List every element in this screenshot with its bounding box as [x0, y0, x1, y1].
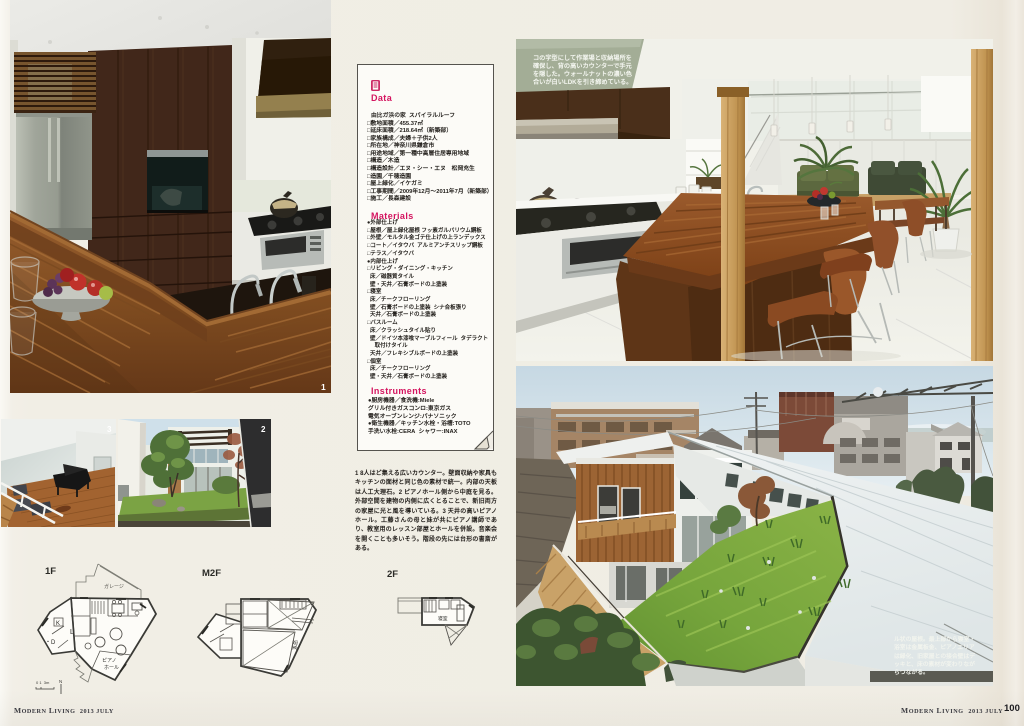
- svg-text:・D: ・D: [45, 640, 56, 646]
- svg-text:K: K: [56, 621, 60, 627]
- svg-text:L: L: [70, 629, 74, 636]
- svg-text:N: N: [59, 679, 62, 684]
- svg-text:M2F: M2F: [202, 568, 221, 579]
- svg-text:3: 3: [107, 425, 112, 434]
- svg-text:ガレージ: ガレージ: [104, 583, 124, 590]
- svg-text:ホール: ホール: [104, 665, 119, 671]
- svg-text:1: 1: [321, 382, 326, 392]
- svg-text:寝室: 寝室: [438, 615, 448, 622]
- svg-text:ピアノ: ピアノ: [102, 658, 117, 664]
- svg-text:0 1 3m: 0 1 3m: [36, 680, 50, 685]
- svg-text:1F: 1F: [45, 566, 56, 577]
- svg-text:2F: 2F: [387, 569, 398, 580]
- svg-text:寝室: 寝室: [291, 640, 298, 650]
- svg-text:2: 2: [261, 425, 266, 434]
